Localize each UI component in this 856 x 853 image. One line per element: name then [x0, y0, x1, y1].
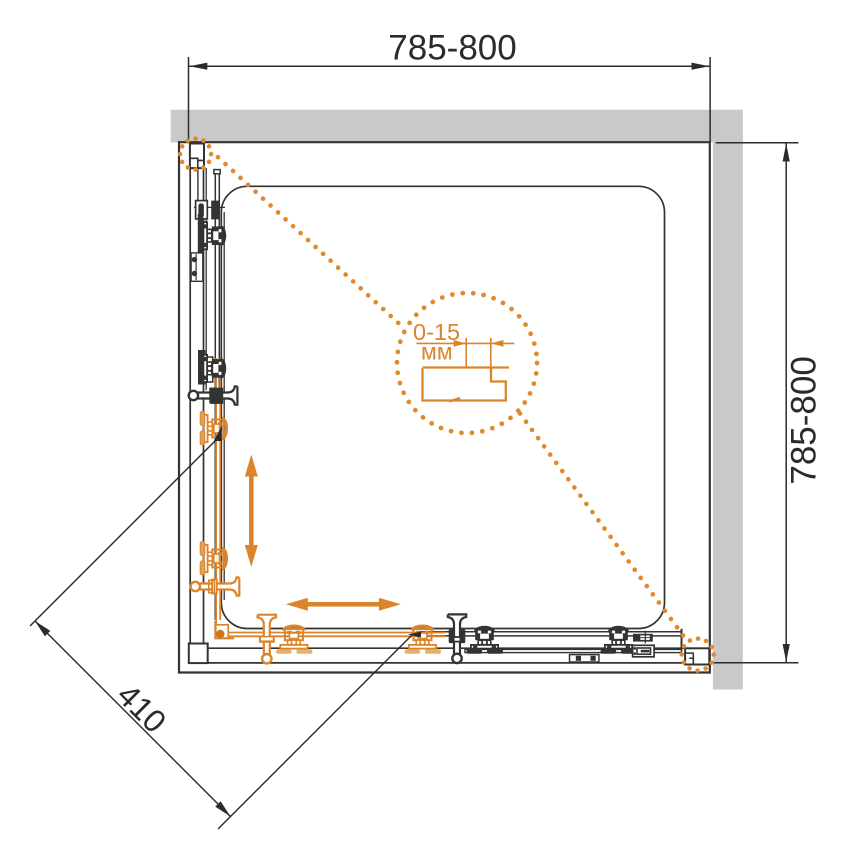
- svg-text:785-800: 785-800: [785, 356, 824, 484]
- svg-text:785-800: 785-800: [388, 29, 516, 68]
- svg-text:мм: мм: [421, 339, 453, 365]
